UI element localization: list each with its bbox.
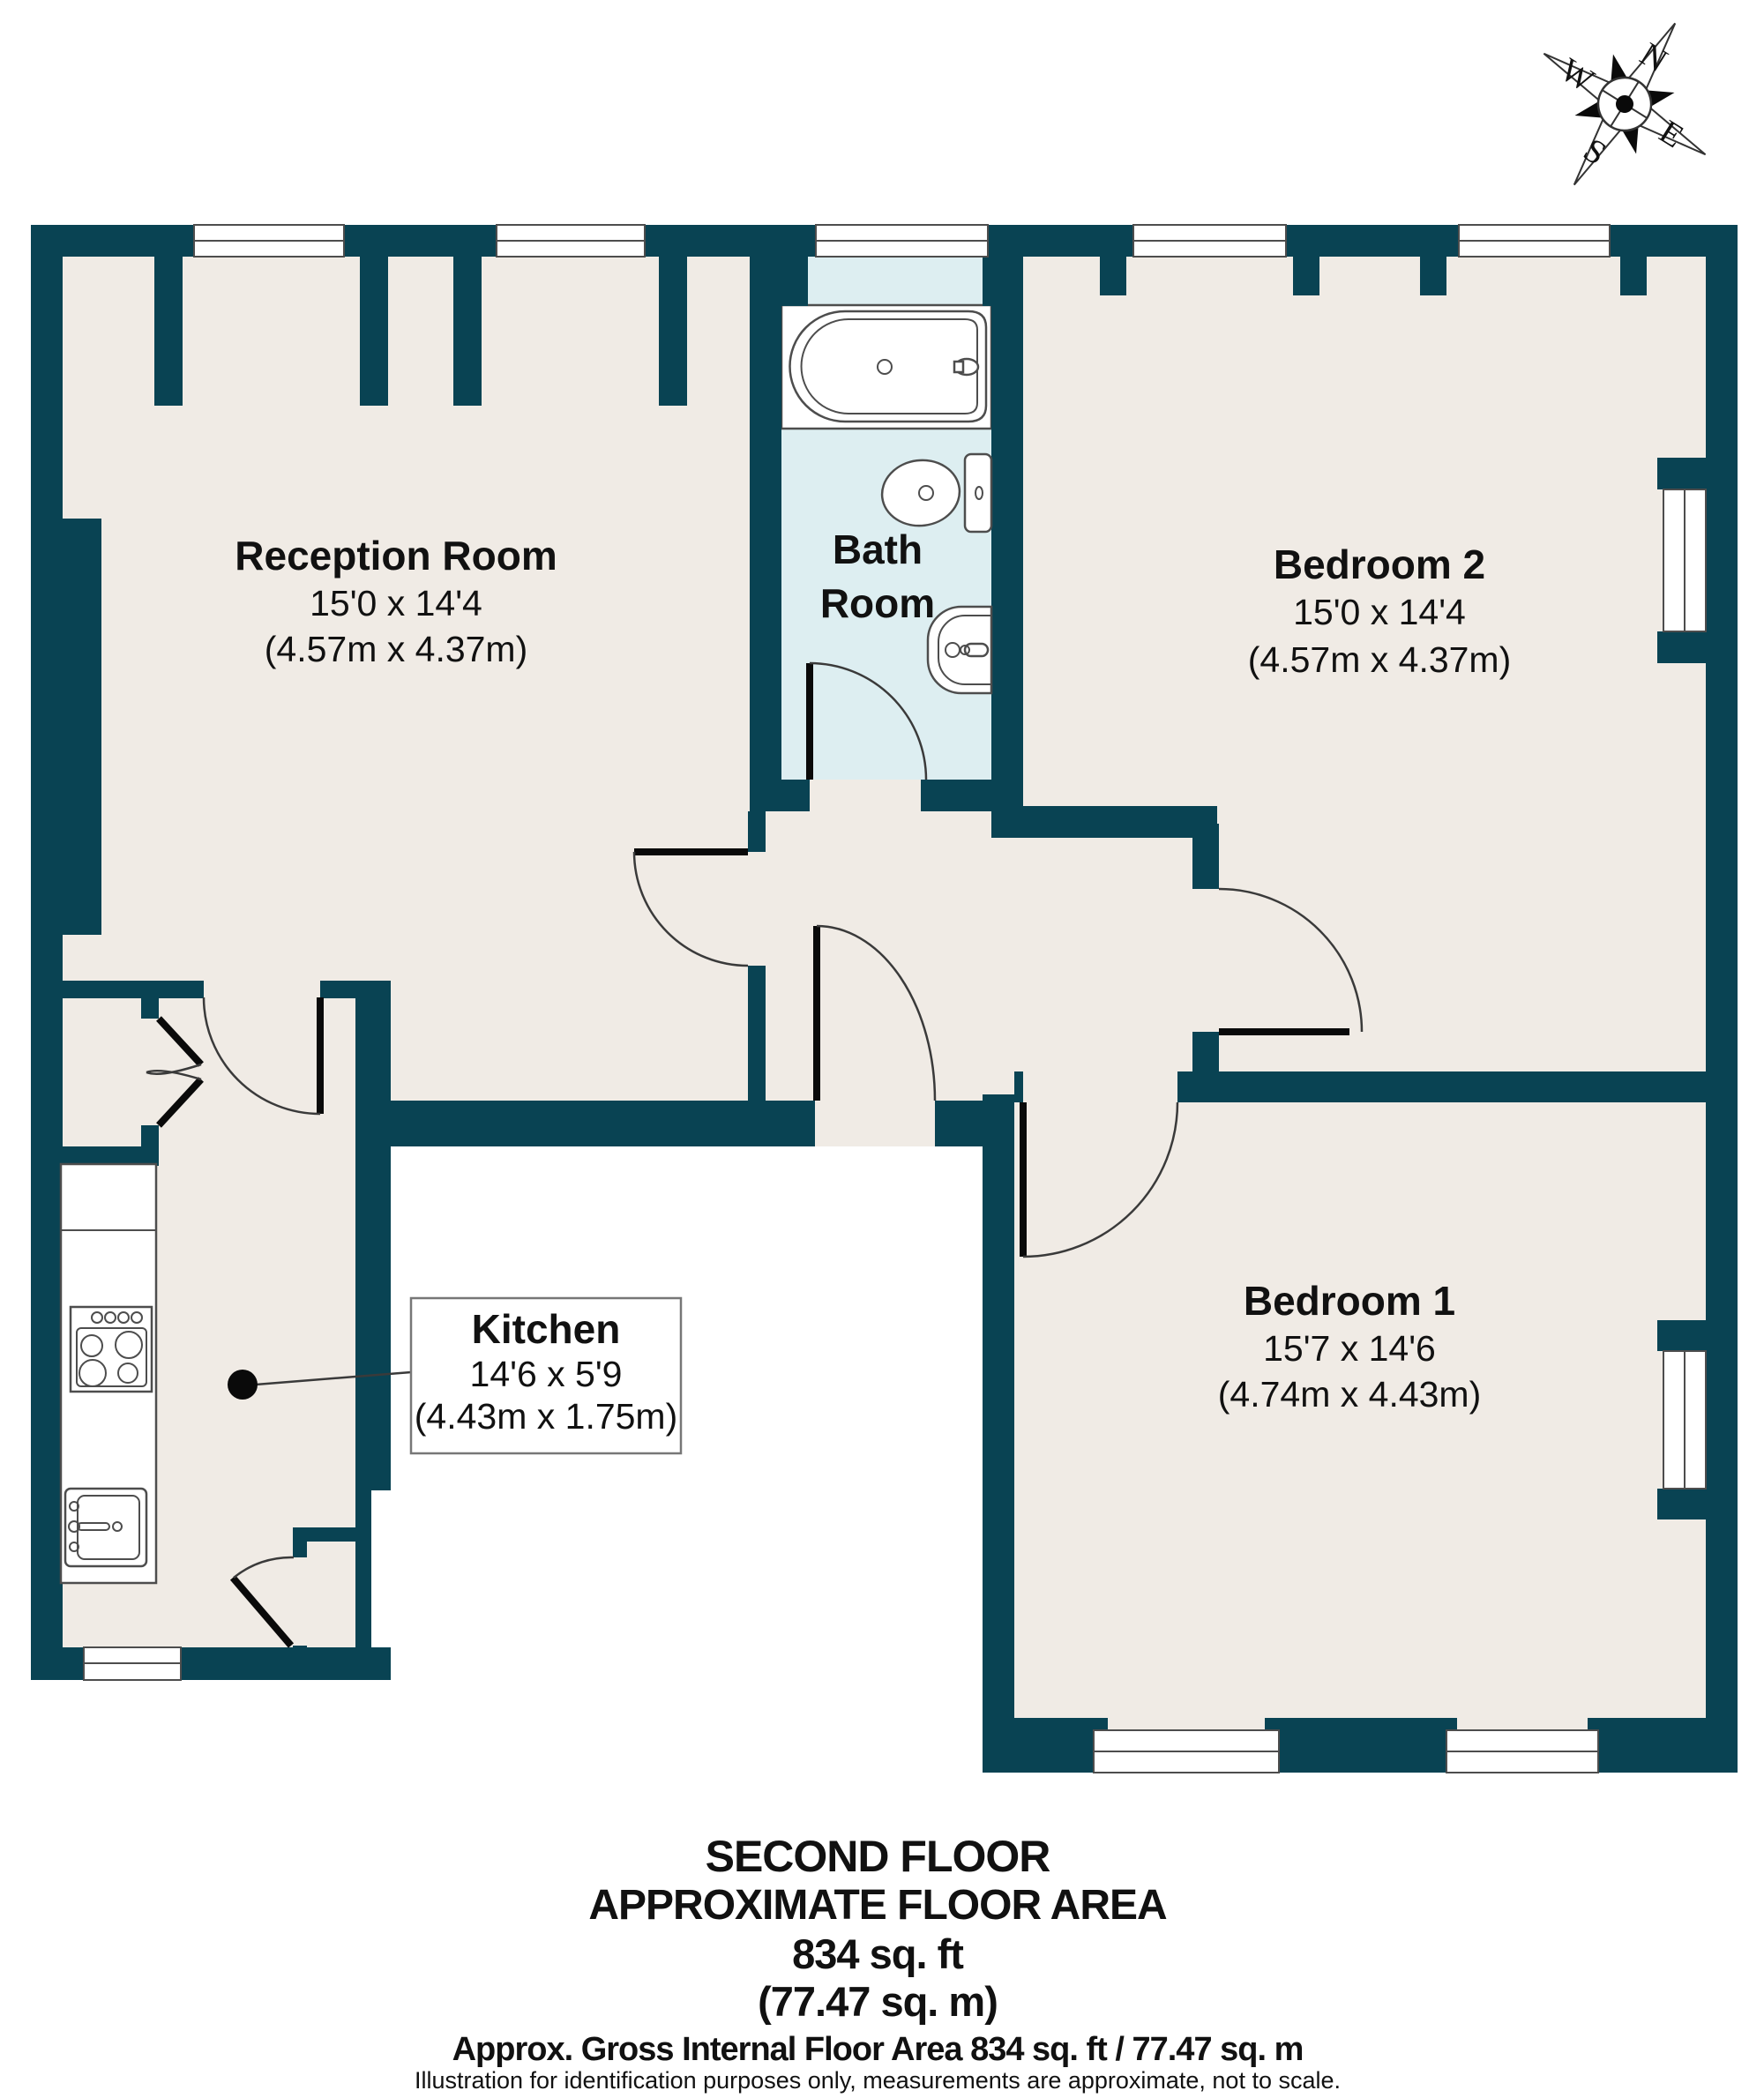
west-wall xyxy=(31,225,63,1680)
reception-east-wall xyxy=(748,811,766,852)
bedroom2-door-wall xyxy=(1192,1032,1219,1071)
bedroom2-east-window xyxy=(1663,489,1706,631)
reception-room-dims-metric: (4.57m x 4.37m) xyxy=(265,629,528,669)
reception-room-label: Reception Room xyxy=(235,533,557,579)
reception-bay-pillar xyxy=(659,257,687,406)
footer-disclaimer: Illustration for identification purposes… xyxy=(415,2067,1341,2094)
floor-plan-page: Reception Room 15'0 x 14'4 (4.57m x 4.37… xyxy=(0,0,1764,2098)
reception-south-wall xyxy=(61,981,204,998)
bedroom1-south-window-1 xyxy=(1094,1718,1279,1773)
footer-line-2: APPROXIMATE FLOOR AREA xyxy=(588,1882,1167,1929)
wash-basin xyxy=(928,607,991,693)
footer: SECOND FLOOR APPROXIMATE FLOOR AREA 834 … xyxy=(415,1832,1341,2094)
bedroom2-window-1 xyxy=(1133,225,1286,257)
hob xyxy=(71,1307,152,1392)
reception-bay-pillar xyxy=(453,257,482,406)
kitchen-east-wall-lower xyxy=(355,1490,371,1649)
west-wall-pier xyxy=(63,519,101,935)
kitchen-label: Kitchen xyxy=(472,1306,621,1352)
bathtub xyxy=(790,311,986,422)
bathroom-west-wall xyxy=(750,257,781,811)
bedroom2-east-window-jamb xyxy=(1657,458,1706,489)
bedroom1-label: Bedroom 1 xyxy=(1244,1278,1455,1324)
reception-bay-pillar xyxy=(154,257,183,406)
bedroom2-dims-imperial: 15'0 x 14'4 xyxy=(1293,592,1466,632)
kitchen-dims-metric: (4.43m x 1.75m) xyxy=(415,1396,678,1437)
bathroom-south-wall xyxy=(750,780,810,811)
bedroom2-bay-pillar xyxy=(1100,257,1126,295)
bedroom1-north-wall xyxy=(1014,1071,1023,1102)
kitchen-east-wall xyxy=(355,981,391,1490)
bedroom1-east-window-jamb xyxy=(1657,1489,1706,1519)
bathroom-east-wall xyxy=(991,257,1023,838)
kitchen-sink xyxy=(65,1489,146,1566)
bedroom2-bay-pillar xyxy=(1620,257,1647,295)
compass-rose: N E S W xyxy=(1493,0,1756,235)
footer-line-3: 834 sq. ft xyxy=(792,1930,964,1977)
east-wall xyxy=(1706,225,1738,1773)
entrance-threshold xyxy=(815,1101,935,1146)
kitchen-door-jamb xyxy=(293,1542,307,1557)
kitchen-leader-dot xyxy=(228,1370,258,1400)
kitchen-south-window xyxy=(84,1647,181,1680)
corridor-threshold xyxy=(204,981,320,998)
bedroom2-door-wall xyxy=(1192,824,1219,889)
bedroom1-west-wall xyxy=(983,1094,1014,1718)
bedroom2-dims-metric: (4.57m x 4.37m) xyxy=(1248,639,1512,680)
bedroom2-bay-pillar xyxy=(1293,257,1319,295)
closet-partition xyxy=(141,1125,159,1148)
bath-window-jamb xyxy=(781,257,808,306)
bathroom-window xyxy=(816,225,988,257)
kitchen-dims-imperial: 14'6 x 5'9 xyxy=(470,1354,623,1394)
reception-east-wall xyxy=(748,966,766,1101)
footer-line-1: SECOND FLOOR xyxy=(706,1832,1051,1881)
hallway-south-wall xyxy=(391,1101,815,1146)
bedroom1-east-window-jamb xyxy=(1657,1320,1706,1351)
bedroom2-east-window-jamb xyxy=(1657,631,1706,663)
floor-plan-canvas: Reception Room 15'0 x 14'4 (4.57m x 4.37… xyxy=(0,0,1764,2098)
bedroom1-dims-imperial: 15'7 x 14'6 xyxy=(1263,1328,1436,1369)
closet-partition xyxy=(141,997,159,1019)
footer-line-4: (77.47 sq. m) xyxy=(758,1978,998,2025)
footer-line-5: Approx. Gross Internal Floor Area 834 sq… xyxy=(452,2031,1304,2068)
bedroom1-north-wall xyxy=(1177,1071,1706,1102)
bedroom1-east-window xyxy=(1663,1351,1706,1489)
bedroom1-dims-metric: (4.74m x 4.43m) xyxy=(1218,1374,1482,1415)
kitchen-door-jog xyxy=(293,1527,371,1542)
bedroom1-south-window-2 xyxy=(1446,1718,1598,1773)
bedroom2-window-2 xyxy=(1459,225,1610,257)
bedroom2-south-wall xyxy=(991,806,1217,838)
reception-window-1 xyxy=(194,225,344,257)
reception-window-2 xyxy=(497,225,645,257)
closet-south-wall xyxy=(31,1146,159,1166)
reception-bay-pillar xyxy=(360,257,388,406)
bedroom2-label: Bedroom 2 xyxy=(1274,541,1485,587)
bathroom-label-line2: Room xyxy=(820,580,935,626)
bathroom-label-line1: Bath xyxy=(833,526,923,572)
bedroom2-bay-pillar xyxy=(1420,257,1446,295)
floors xyxy=(63,257,1706,1718)
reception-room-dims-imperial: 15'0 x 14'4 xyxy=(310,583,482,623)
